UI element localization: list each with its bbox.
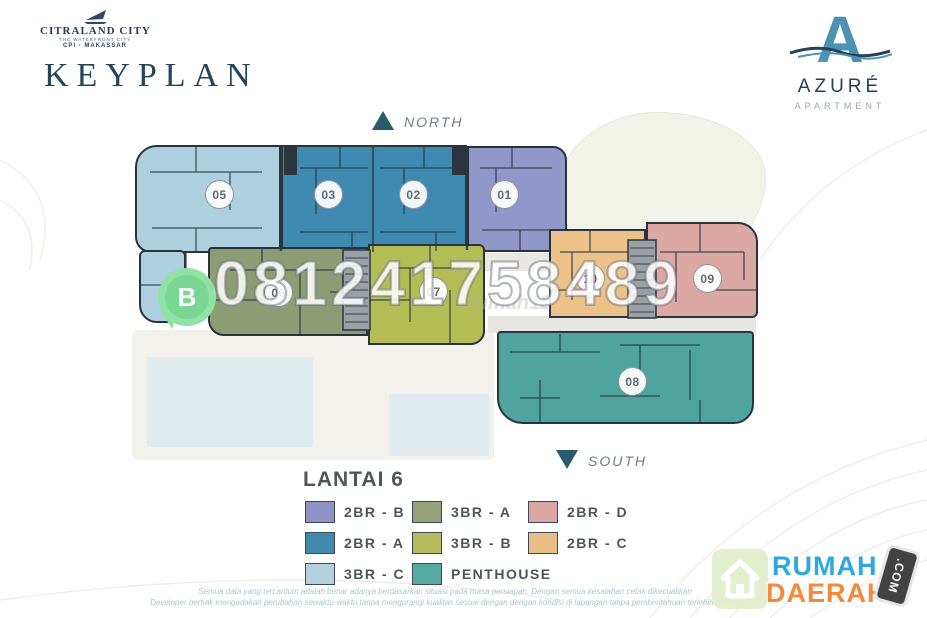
whatsapp-bubble-tail	[159, 313, 176, 330]
unit-circle-03: 03	[314, 180, 343, 209]
north-arrow-icon	[372, 111, 394, 130]
unit-circle-08: 08	[618, 367, 647, 396]
unit-circle-02: 02	[399, 180, 428, 209]
unit-circle-09: 09	[693, 264, 722, 293]
unit-circle-05: 05	[205, 180, 234, 209]
site-logo-word-daerah: DAERAH	[766, 578, 888, 609]
keyplan-page: { "header": { "citraland": { "name": "CI…	[0, 0, 927, 618]
unit-circle-01: 01	[490, 180, 519, 209]
south-arrow-icon	[556, 450, 578, 469]
house-icon	[712, 549, 768, 609]
phone-watermark: 081241758489	[214, 248, 682, 320]
whatsapp-badge-letter: B	[165, 275, 209, 319]
south-label: SOUTH	[588, 453, 647, 469]
site-logo-com-text: .COM	[885, 557, 908, 595]
north-label: NORTH	[404, 114, 464, 130]
